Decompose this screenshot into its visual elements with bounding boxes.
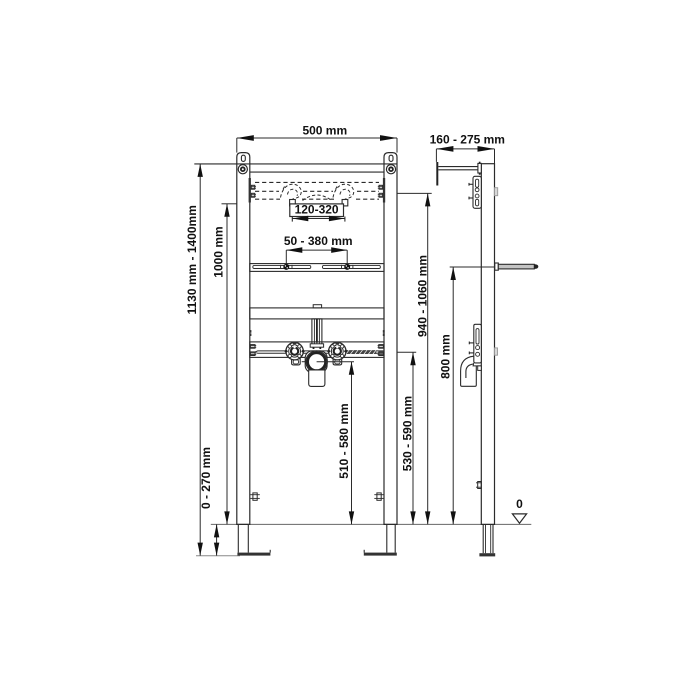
svg-text:160 - 275 mm: 160 - 275 mm: [430, 133, 505, 147]
svg-text:800 mm: 800 mm: [438, 334, 452, 379]
svg-text:1130 mm - 1400mm: 1130 mm - 1400mm: [185, 205, 199, 314]
svg-text:530 - 590 mm: 530 - 590 mm: [400, 396, 414, 471]
svg-text:50 - 380 mm: 50 - 380 mm: [284, 234, 353, 248]
svg-text:940 - 1060 mm: 940 - 1060 mm: [415, 255, 429, 337]
svg-text:510 - 580 mm: 510 - 580 mm: [337, 403, 351, 478]
svg-text:0 - 270 mm: 0 - 270 mm: [199, 447, 213, 509]
svg-text:500 mm: 500 mm: [302, 123, 347, 137]
svg-text:120-320: 120-320: [295, 203, 339, 217]
svg-text:0: 0: [516, 497, 523, 511]
svg-text:1000 mm: 1000 mm: [211, 226, 225, 277]
